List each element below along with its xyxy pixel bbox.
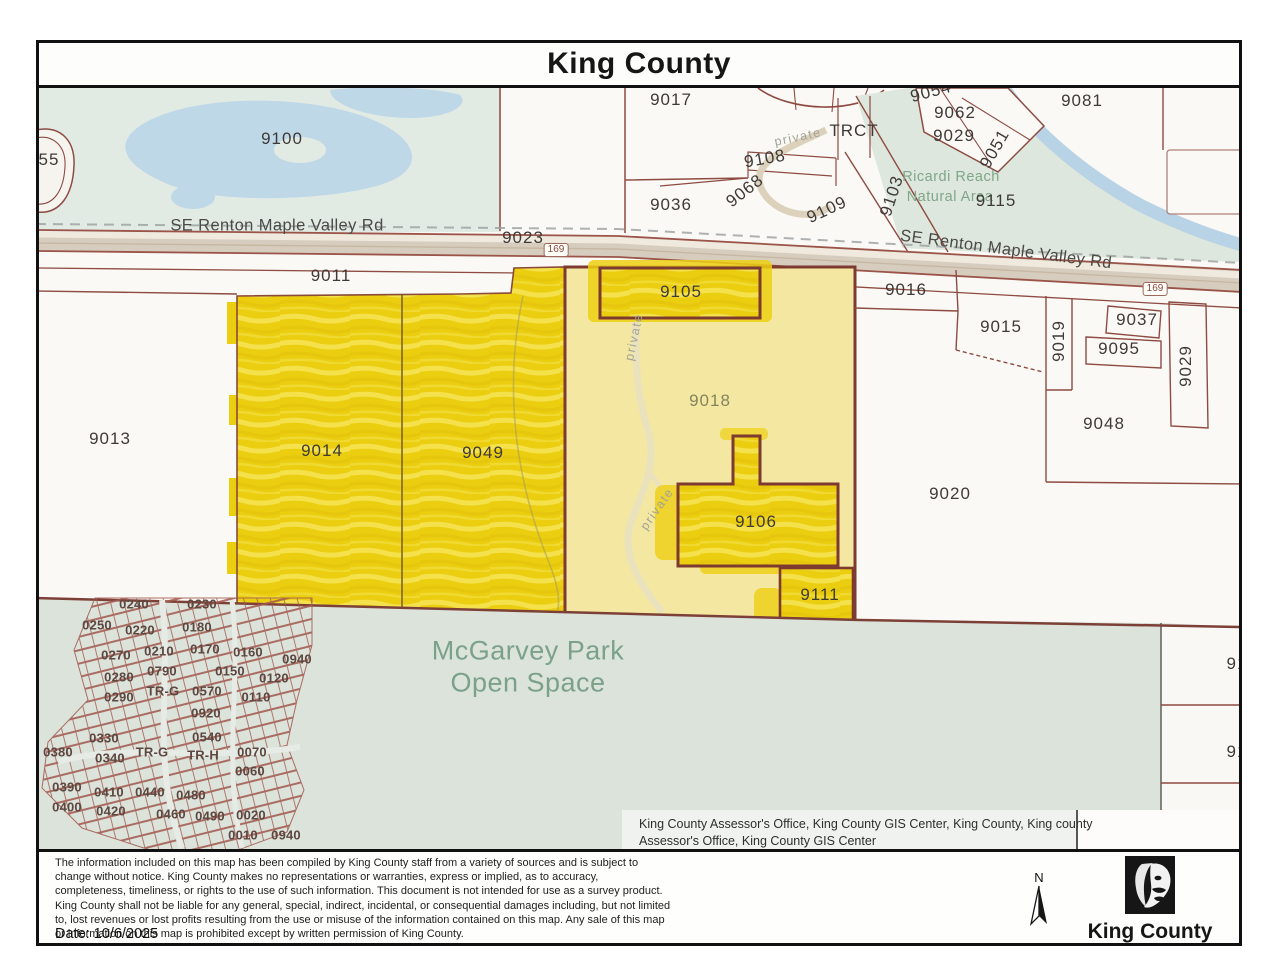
lot-number-label: 0940: [271, 828, 301, 843]
lot-number-label: 0110: [241, 690, 270, 705]
north-arrow: N: [1024, 872, 1054, 931]
lot-number-label: 0540: [192, 730, 222, 745]
map-region: 9100559017903691089068TRCT9109private905…: [39, 88, 1239, 852]
map-document-frame: King County: [36, 40, 1242, 946]
private-road-label: private: [773, 125, 823, 149]
lot-number-label: 0400: [52, 800, 82, 815]
parcel-number-label: 9023: [502, 228, 544, 248]
lot-number-label: 0480: [176, 788, 206, 803]
lot-number-label: 0270: [101, 648, 131, 663]
lot-number-label: TR-G: [136, 745, 169, 760]
park-name-label: Open Space: [450, 668, 605, 699]
lot-number-label: 0180: [182, 620, 212, 635]
lot-number-label: 0240: [119, 597, 149, 612]
parcel-number-label: 9111: [800, 585, 839, 605]
parcel-number-label: 9109: [804, 192, 850, 228]
parcel-number-label: 9011: [311, 266, 352, 286]
parcel-number-label: 9029: [933, 126, 975, 146]
lot-number-label: 0290: [104, 690, 134, 705]
parcel-number-label: 9036: [650, 195, 692, 215]
title-bar: King County: [39, 43, 1239, 88]
lot-number-label: 0790: [147, 664, 177, 679]
attribution-text: King County Assessor's Office, King Coun…: [639, 816, 1123, 849]
parcel-number-label: 9015: [980, 317, 1022, 337]
lot-number-label: TR-H: [187, 748, 219, 763]
lot-number-label: 0440: [135, 785, 165, 800]
parcel-number-label: 9068: [722, 170, 767, 212]
lot-number-label: 0120: [259, 671, 289, 686]
parcel-number-label: 9108: [743, 146, 788, 173]
lot-number-label: 0150: [215, 664, 245, 679]
lot-number-label: 0170: [190, 642, 220, 657]
parcel-number-label: 9018: [689, 391, 731, 411]
parcel-number-label: 9014: [301, 441, 343, 461]
parcel-number-label: 91: [1227, 742, 1239, 762]
parcel-number-label: 9029: [1176, 345, 1196, 387]
lot-number-label: 0420: [96, 804, 126, 819]
lot-number-label: 0460: [156, 807, 186, 822]
parcel-number-label: 9100: [261, 129, 303, 149]
parcel-number-label: 9020: [929, 484, 971, 504]
lot-number-label: 0060: [235, 764, 265, 779]
parcel-number-label: 9017: [650, 90, 692, 110]
parcel-number-label: 9115: [976, 191, 1017, 211]
parcel-number-label: 9049: [462, 443, 504, 463]
king-county-logo: King County: [1085, 856, 1215, 944]
lot-number-label: 0390: [52, 780, 82, 795]
parcel-number-label: 55: [39, 150, 59, 170]
lot-number-label: 0920: [191, 706, 221, 721]
lot-number-label: 0020: [236, 808, 266, 823]
parcel-number-label: 9062: [934, 103, 976, 123]
lot-number-label: 0940: [282, 652, 312, 667]
natural-area-label: Ricardi Reach: [902, 169, 1000, 185]
page: { "window": { "title": "King County" }, …: [0, 0, 1280, 960]
lot-number-label: 0210: [144, 644, 174, 659]
parcel-number-label: 9106: [735, 512, 777, 532]
lot-number-label: 0490: [195, 809, 225, 824]
lot-number-label: 0340: [95, 751, 125, 766]
parcel-number-label: 9095: [1098, 339, 1140, 359]
lot-number-label: 0070: [237, 745, 267, 760]
road-label: SE Renton Maple Valley Rd: [899, 227, 1113, 274]
lot-number-label: 0330: [89, 731, 119, 746]
map-labels: 9100559017903691089068TRCT9109private905…: [39, 88, 1239, 849]
date-text: Date: 10/6/2025: [55, 926, 158, 942]
parcel-number-label: 9105: [660, 282, 702, 302]
lot-number-label: 0250: [82, 618, 112, 633]
highway-shield-169: 169: [1143, 282, 1168, 296]
road-label: SE Renton Maple Valley Rd: [170, 217, 383, 236]
parcel-number-label: TRCT: [829, 121, 878, 141]
parcel-number-label: 9016: [885, 280, 927, 300]
logo-label: King County: [1085, 920, 1215, 944]
parcel-number-label: 9081: [1061, 91, 1103, 111]
parcel-number-label: 9037: [1116, 310, 1158, 330]
lot-number-label: 0570: [192, 684, 222, 699]
king-county-logo-icon: [1125, 856, 1175, 914]
lot-number-label: 0010: [228, 828, 258, 843]
lot-number-label: 0160: [233, 645, 263, 660]
lot-number-label: TR-G: [147, 684, 180, 699]
lot-number-label: 0220: [125, 623, 155, 638]
parcel-number-label: 91: [1227, 654, 1239, 674]
parcel-number-label: 9013: [89, 429, 131, 449]
lot-number-label: 0410: [94, 785, 124, 800]
footer: The information included on this map has…: [39, 852, 1239, 943]
page-title: King County: [547, 47, 731, 81]
parcel-number-label: 9019: [1049, 320, 1069, 362]
private-road-label: private: [622, 312, 646, 362]
park-name-label: McGarvey Park: [432, 636, 625, 667]
parcel-number-label: 9051: [976, 126, 1014, 172]
north-label: N: [1024, 872, 1054, 884]
highway-shield-169: 169: [544, 243, 569, 257]
lot-number-label: 0230: [187, 597, 217, 612]
lot-number-label: 0280: [104, 670, 134, 685]
private-road-label: private: [637, 485, 676, 532]
parcel-number-label: 9048: [1083, 414, 1125, 434]
lot-number-label: 0380: [43, 745, 73, 760]
north-arrow-icon: [1027, 884, 1051, 926]
